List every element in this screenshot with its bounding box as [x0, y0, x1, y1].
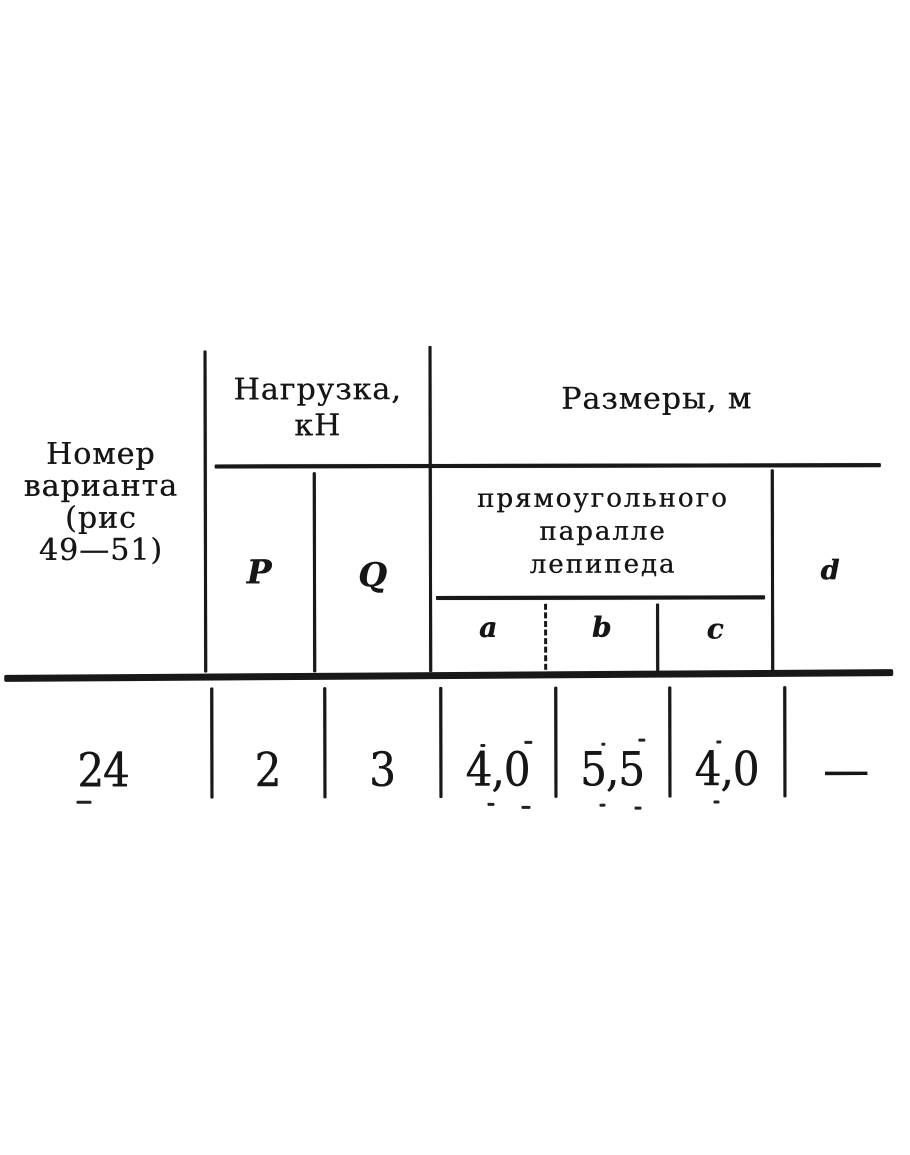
scanned-page: Номер варианта (рис 49—51) Нагрузка, кН …: [0, 0, 910, 1155]
load-header-line2: кН: [207, 408, 429, 444]
scan-speck: [716, 740, 721, 743]
variants-table: Номер варианта (рис 49—51) Нагрузка, кН …: [0, 0, 910, 1155]
variant-header-line4: 49—51): [0, 535, 202, 567]
scan-speck: [76, 801, 91, 804]
scan-speck: [480, 744, 485, 747]
load-column-header: Нагрузка, кН: [207, 372, 429, 444]
scan-speck: [524, 741, 532, 744]
ppd-header-line1: прямоугольного: [436, 482, 770, 516]
column-label-p: P: [205, 552, 313, 591]
ppd-header-line2: паралле: [436, 515, 770, 549]
ppd-header-line3: лепипеда: [436, 548, 770, 582]
row-cell-variant: 24: [0, 735, 205, 807]
column-label-b: b: [547, 611, 656, 644]
vline-row-6: [783, 686, 786, 797]
row-cell-b: 5,5: [555, 734, 668, 806]
load-header-line1: Нагрузка,: [207, 372, 429, 408]
column-label-d: d: [774, 555, 886, 586]
scan-speck: [599, 804, 605, 807]
column-label-q: Q: [316, 555, 429, 594]
column-label-c: c: [659, 612, 771, 645]
variant-header-line3: (рис: [0, 503, 202, 535]
parallelepiped-header: прямоугольного паралле лепипеда: [436, 482, 770, 582]
column-label-a: a: [432, 611, 544, 644]
variant-header-line2: варианта: [0, 471, 202, 503]
scan-speck: [487, 803, 494, 806]
scan-speck: [521, 806, 530, 809]
row-cell-p: 2: [211, 734, 323, 806]
scan-speck: [601, 743, 605, 746]
row-cell-d: —: [789, 733, 901, 805]
row-cell-c: 4,0: [669, 733, 783, 805]
scan-speck: [638, 739, 645, 742]
row-cell-a: 4,0: [440, 734, 554, 806]
row-cell-q: 3: [324, 734, 439, 806]
scan-speck: [713, 800, 719, 803]
hline-under-top-headers: [215, 463, 881, 468]
variant-header-line1: Номер: [0, 439, 202, 471]
hline-under-ppd-header: [436, 595, 765, 600]
scan-speck: [634, 807, 641, 810]
dimensions-header: Размеры, м: [432, 383, 882, 416]
hline-thick-separator: [4, 669, 893, 682]
variant-column-header: Номер варианта (рис 49—51): [0, 439, 202, 567]
